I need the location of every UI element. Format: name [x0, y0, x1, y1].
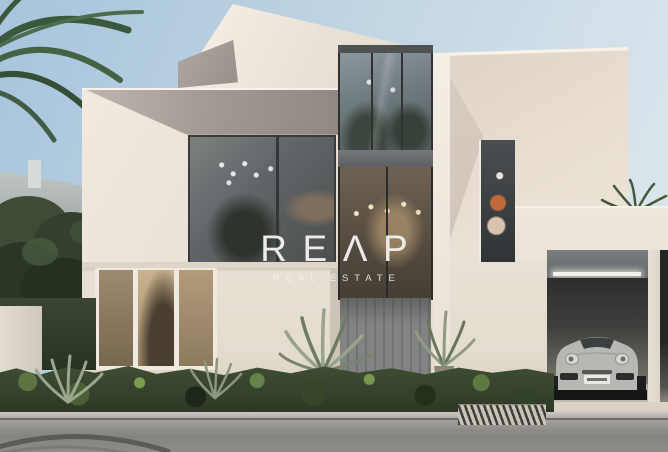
garage-pillar [648, 250, 660, 402]
car-intake-right [616, 373, 634, 380]
left-wing-window [188, 135, 336, 266]
sports-car [548, 326, 647, 400]
left-wing [82, 88, 338, 268]
tower-lintel [338, 45, 433, 53]
mullion [401, 53, 403, 150]
car-intake-left [560, 373, 578, 380]
mullion [371, 53, 373, 150]
mullion [276, 135, 279, 266]
window-pane [138, 270, 174, 366]
floor-slab-band [338, 150, 433, 167]
living-room-windows [95, 266, 217, 370]
roof-edge-highlight [82, 88, 338, 90]
car-headlight-left-lens [569, 357, 574, 362]
entry-upper-glazing [338, 53, 433, 150]
window-pane [179, 270, 213, 366]
car-grille [582, 370, 612, 374]
entry-lower-glazing [338, 167, 433, 300]
second-garage-bay [660, 250, 668, 402]
garage-led-strip [553, 272, 641, 276]
agave-plant-icon [185, 356, 245, 400]
car-wheel-right [637, 376, 646, 390]
garage-opening [547, 250, 648, 402]
tire-mark-icon [0, 418, 210, 452]
mullion [386, 167, 388, 300]
neighbor-roof-edge [28, 160, 41, 188]
car-plate-text-blur [587, 378, 607, 381]
drain-grate [458, 404, 546, 425]
car-headlight-right-lens [621, 357, 626, 362]
agave-plant-icon [28, 352, 108, 404]
property-photo: REΛP REAL ESTATE [0, 0, 668, 452]
window-sill [82, 262, 338, 268]
car-shadow [548, 390, 647, 400]
